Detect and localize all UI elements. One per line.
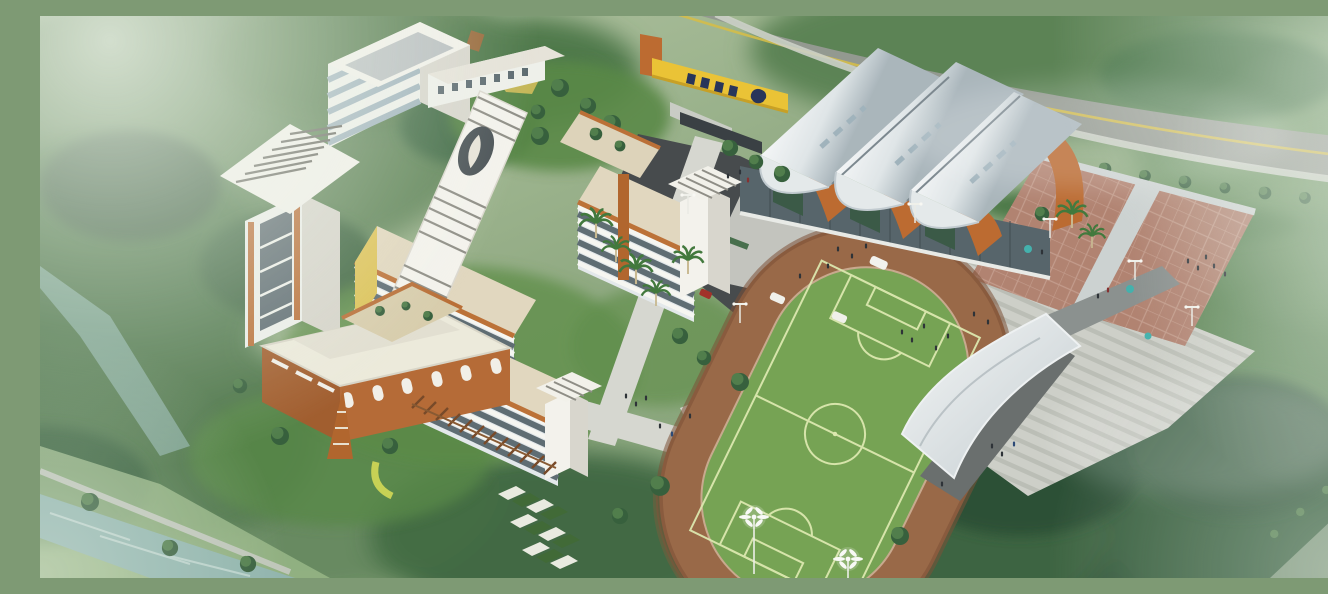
haze-streak [910, 81, 1290, 191]
scene-canvas [40, 16, 1328, 578]
campus-aerial-rendering: Aerial bird's-eye architectural renderin… [40, 16, 1328, 578]
atmospheric-haze [40, 16, 1328, 578]
